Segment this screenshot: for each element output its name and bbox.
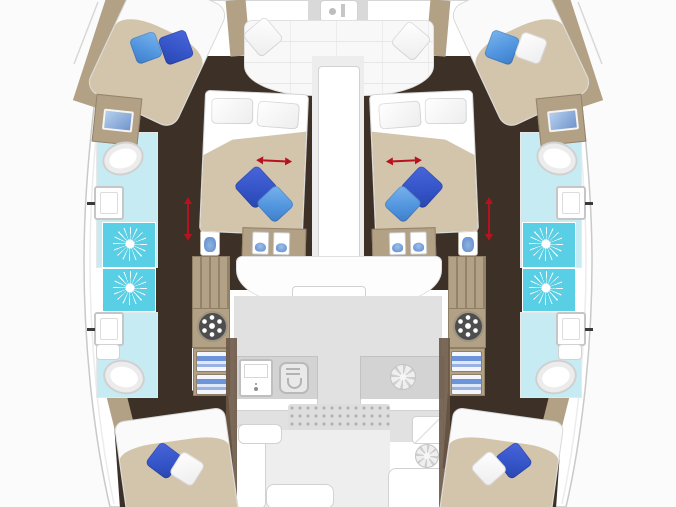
shower-head-icon [113,227,147,261]
fwd-vanity-port [92,94,143,147]
companionway-steps-starboard [448,256,486,310]
storage-drawers-starboard [448,348,485,396]
galley-vent-icon [390,364,416,390]
galley-sink [239,359,273,397]
head-pillow [256,100,300,129]
shelf-basin [273,232,291,255]
washbasin-aft-port [94,312,124,346]
shelf-basin [410,231,428,254]
guest-bed-port [199,90,309,236]
bed-slide-arrow [256,155,292,167]
aft-bed-starboard [439,407,564,507]
head-pillow [211,98,253,124]
washing-machine-icon [453,311,484,342]
shelf-basin [252,231,270,254]
windlass-box [320,0,358,22]
shelf-basin [389,232,407,255]
corridor-basin-port [200,230,220,256]
cockpit-grating [288,404,390,430]
shower-head-icon [113,271,147,305]
drawer [451,351,482,372]
fwd-vanity-starboard [536,94,587,147]
sofa-port-cushion [238,424,282,444]
guest-bed-starboard [369,90,479,236]
fwd-vanity-sink-starboard [547,108,579,132]
washbasin-fwd-starboard [556,186,586,220]
corridor-arrow-port [183,197,193,241]
windlass-arm [341,4,345,17]
dining-table [266,484,334,507]
washbasin-fwd-port [94,186,124,220]
fwd-vanity-sink-port [102,109,134,133]
drawer [196,351,227,372]
storage-drawers-port [193,348,230,396]
head-pillow [425,98,467,124]
corridor-basin-starboard [458,230,478,256]
stove-icon [279,362,309,394]
aft-sink-shelf-port [96,344,120,360]
aft-sink-shelf-starboard [558,344,582,360]
drawer [196,374,227,395]
aft-bed-port [113,407,238,507]
drawer [451,374,482,395]
nav-fan-icon [415,444,439,468]
companionway-steps-port [192,256,230,310]
center-door-panel [318,66,360,264]
corridor-arrow-starboard [484,197,494,241]
head-pillow [378,100,422,129]
washbasin-aft-starboard [556,312,586,346]
washing-machine-icon [197,311,228,342]
shower-head-icon [529,227,563,261]
bed-slide-arrow [386,155,422,167]
floorplan-canvas [0,0,676,507]
shower-head-icon [529,271,563,305]
windlass-gypsy [329,8,336,15]
